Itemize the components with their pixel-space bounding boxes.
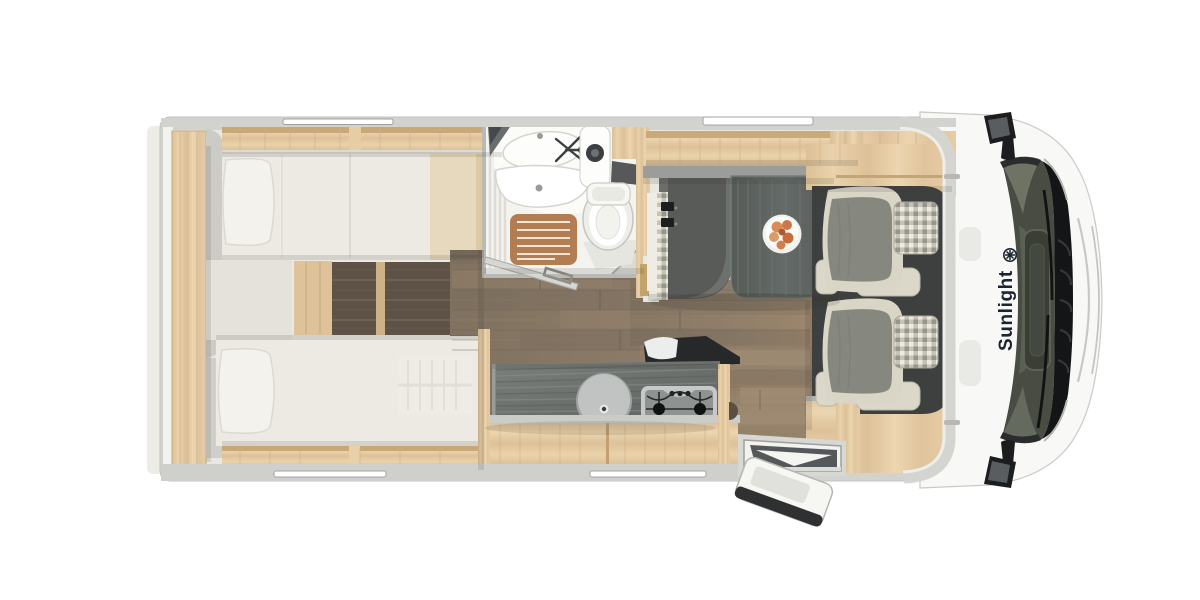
- svg-text:Sunlight: Sunlight: [996, 270, 1017, 351]
